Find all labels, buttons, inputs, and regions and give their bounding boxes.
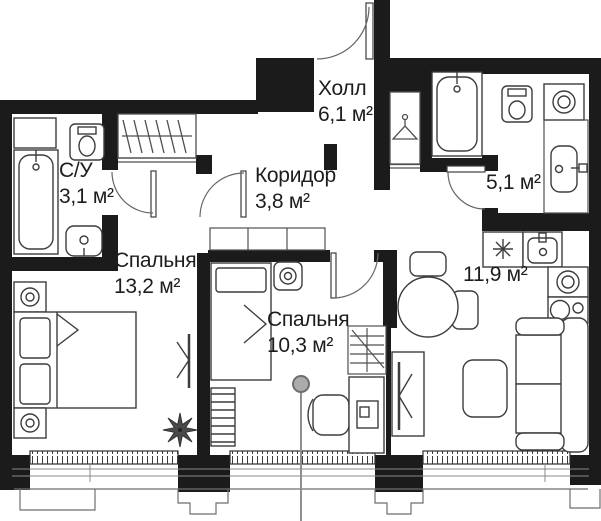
plant-icon bbox=[163, 413, 197, 447]
hanger-icon bbox=[393, 115, 417, 140]
tv-stand bbox=[392, 352, 424, 436]
sink-icon bbox=[551, 146, 587, 192]
ladder-icon bbox=[211, 388, 235, 446]
corridor-cabinets bbox=[210, 228, 325, 250]
tv-icon bbox=[177, 334, 189, 388]
wardrobe-icon bbox=[348, 326, 386, 374]
room-name: Холл bbox=[318, 76, 373, 102]
room-name: Коридор bbox=[255, 163, 336, 189]
floor-plan: С/У 3,1 м² Холл 6,1 м² Коридор 3,8 м² 5,… bbox=[0, 0, 601, 521]
chair-icon bbox=[308, 395, 349, 435]
sofa-icon bbox=[516, 318, 588, 452]
toilet-icon bbox=[502, 86, 532, 122]
sink-icon bbox=[66, 226, 102, 256]
windows bbox=[12, 451, 600, 514]
kitchen-sink-icon bbox=[523, 232, 562, 267]
room-name: Спальня bbox=[114, 248, 196, 274]
room-area: 13,2 м² bbox=[114, 274, 196, 300]
chair-icon bbox=[410, 252, 446, 276]
door-icon bbox=[447, 166, 485, 209]
nightstand-icon bbox=[14, 408, 46, 438]
bathtub-icon bbox=[14, 150, 58, 254]
wardrobe-icon bbox=[118, 114, 196, 162]
double-bed-icon bbox=[14, 312, 136, 408]
room-area: 11,9 м² bbox=[463, 262, 527, 288]
room-label-bathroom: 5,1 м² bbox=[486, 170, 541, 196]
facade-outline bbox=[14, 489, 600, 514]
room-area: 5,1 м² bbox=[486, 170, 541, 196]
door-icon bbox=[112, 171, 156, 217]
room-area: 6,1 м² bbox=[318, 102, 373, 128]
oven-icon bbox=[548, 267, 588, 297]
room-name: Спальня bbox=[267, 307, 349, 333]
location-pin-icon[interactable] bbox=[293, 376, 309, 521]
floor-plan-drawing bbox=[0, 0, 601, 521]
window-icon bbox=[423, 451, 570, 464]
shelf-icon bbox=[14, 118, 56, 148]
single-bed-icon bbox=[211, 263, 271, 380]
room-area: 3,8 м² bbox=[255, 189, 336, 215]
window-icon bbox=[30, 451, 178, 464]
bathtub-icon bbox=[432, 72, 482, 156]
door-icon bbox=[200, 171, 246, 217]
room-area: 10,3 м² bbox=[267, 333, 349, 359]
toilet-icon bbox=[70, 124, 104, 160]
door-icon bbox=[331, 253, 378, 298]
room-name: С/У bbox=[59, 158, 114, 184]
room-label-kitchen: 11,9 м² bbox=[463, 262, 527, 288]
room-label-bedroom-1: Спальня 13,2 м² bbox=[114, 248, 196, 300]
room-area: 3,1 м² bbox=[59, 184, 114, 210]
room-label-bedroom-2: Спальня 10,3 м² bbox=[267, 307, 349, 359]
nightstand-icon bbox=[14, 282, 46, 312]
room-label-corridor: Коридор 3,8 м² bbox=[255, 163, 336, 215]
room-label-wc: С/У 3,1 м² bbox=[59, 158, 114, 210]
desk-icon bbox=[349, 377, 384, 453]
entrance-door-icon bbox=[317, 3, 373, 59]
room-label-hall: Холл 6,1 м² bbox=[318, 76, 373, 128]
coat-closet bbox=[390, 92, 420, 168]
dining-table-icon bbox=[398, 277, 458, 337]
nightstand-icon bbox=[274, 262, 302, 290]
washing-machine-icon bbox=[544, 84, 584, 120]
coffee-table-icon bbox=[463, 360, 507, 417]
